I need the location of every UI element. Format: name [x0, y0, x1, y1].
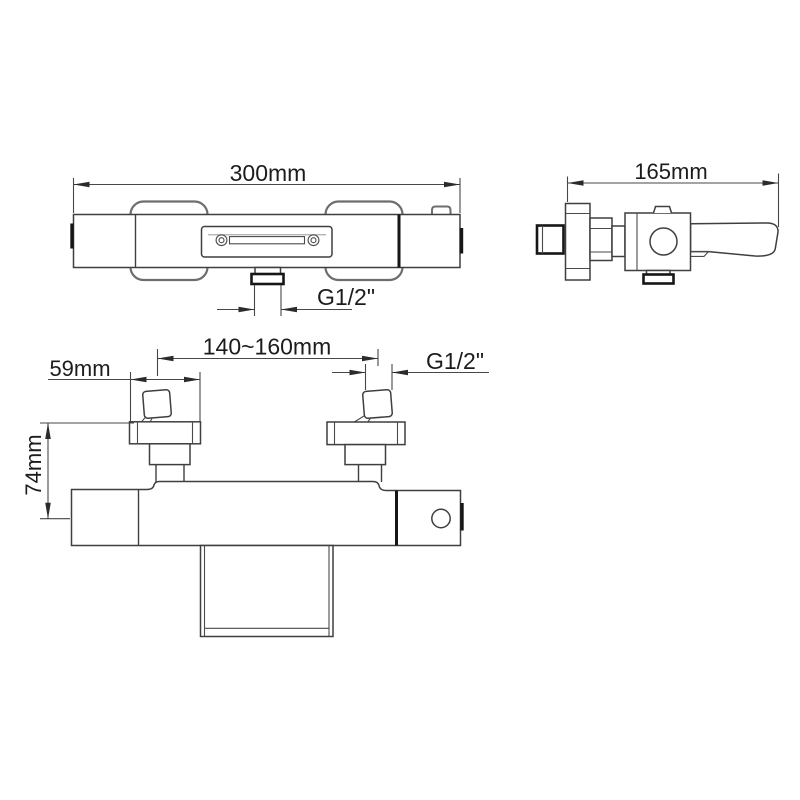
dimension-outlet-thread: G1/2": [217, 284, 375, 316]
side-view: 165mm: [537, 159, 779, 284]
escutcheon-right: [327, 422, 405, 445]
dim-300mm-label: 300mm: [230, 160, 307, 186]
hex-nut-side: [590, 218, 612, 261]
arrowhead-left: [568, 180, 584, 186]
technical-drawing: 300mm G1/2": [0, 0, 800, 800]
dimension-inlet-spacing: 140~160mm: [158, 334, 379, 377]
drawing-canvas: 300mm G1/2": [0, 0, 800, 800]
dim-59mm-label: 59mm: [49, 356, 110, 381]
arrowhead-left: [350, 370, 366, 376]
inlet-fitting-right: [362, 389, 392, 418]
arrowhead-left: [158, 356, 174, 362]
temperature-knob-port: [432, 509, 450, 527]
dim-165mm-label: 165mm: [634, 159, 707, 184]
arrowhead-right: [392, 370, 408, 376]
arrowhead-right: [763, 180, 779, 186]
escutcheon-left: [130, 422, 201, 444]
arrowhead-down: [45, 503, 51, 519]
inlet-connector-side: [537, 226, 564, 254]
dim-g12-front-label: G1/2": [317, 284, 375, 310]
union-nut-right: [345, 445, 386, 465]
union-nut-left: [150, 444, 191, 465]
arrowhead-left: [239, 307, 255, 313]
top-button-side: [654, 207, 672, 214]
spout-block: [201, 546, 334, 637]
dimension-59mm: 59mm: [48, 356, 200, 421]
arrowhead-right: [184, 377, 200, 383]
installation-view: 140~160mm 59mm G1/2" 74mm: [21, 334, 489, 637]
outlet-fitting-side: [644, 275, 674, 284]
union-collar: [612, 226, 625, 257]
arrowhead-left: [131, 377, 147, 383]
arrowhead-left: [74, 182, 90, 188]
diverter-button: [432, 207, 451, 216]
dimension-inlet-thread: G1/2": [332, 348, 489, 390]
dim-74mm-label: 74mm: [21, 434, 46, 495]
arrowhead-right: [281, 307, 297, 313]
dimension-300mm: 300mm: [74, 160, 461, 213]
inlet-fitting-left: [142, 389, 171, 418]
arrowhead-right: [444, 182, 460, 188]
control-window: [202, 227, 333, 258]
arrowhead-right: [362, 356, 378, 362]
dim-g12-install-label: G1/2": [426, 348, 484, 374]
body-port-circle: [650, 228, 677, 255]
valve-body-install: [72, 482, 461, 546]
front-view: 300mm G1/2": [72, 160, 462, 316]
arrowhead-up: [45, 423, 51, 439]
outlet-fitting: [252, 274, 284, 284]
dim-140-160mm-label: 140~160mm: [203, 334, 332, 360]
